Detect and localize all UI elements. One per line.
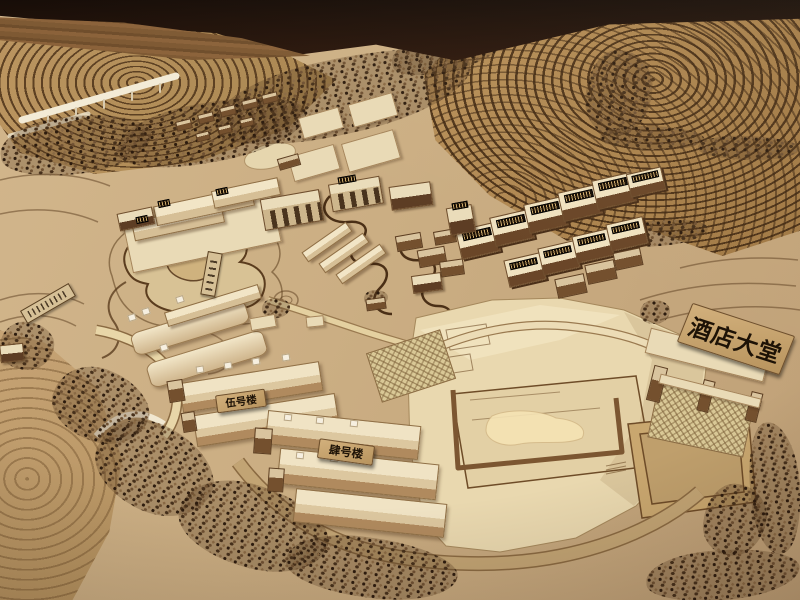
building-block — [195, 130, 211, 142]
roof-plaque — [563, 189, 593, 204]
building-chimney — [284, 414, 293, 422]
building-chimney — [252, 357, 261, 365]
building-gabled — [411, 272, 443, 294]
building-chimney — [196, 365, 205, 373]
building-slab — [249, 314, 277, 331]
building-block — [219, 104, 237, 118]
building-block — [554, 273, 588, 299]
roof-plaque — [611, 221, 640, 235]
building-slab — [348, 92, 399, 128]
building-block — [365, 297, 386, 312]
building-chimney — [159, 343, 169, 352]
model-photo: 伍号楼 肆号楼 酒店大堂 — [0, 0, 800, 600]
building-block — [439, 258, 465, 277]
building-slab — [305, 315, 324, 328]
building-block — [197, 111, 215, 125]
building-block — [181, 411, 198, 433]
building-chimney — [282, 353, 291, 361]
building-chimney — [316, 417, 325, 425]
building-chimney — [175, 295, 185, 304]
building-chimney — [350, 420, 359, 428]
building-slab — [341, 129, 401, 173]
building-chimney — [141, 307, 151, 316]
building-gabled — [389, 181, 434, 211]
building-block — [241, 97, 259, 111]
building-townhouse — [605, 216, 648, 252]
building-gabled — [0, 343, 25, 363]
roof-plaque — [495, 214, 525, 229]
building-block — [166, 379, 185, 403]
roof-plaque — [631, 170, 658, 183]
building-block — [584, 259, 618, 285]
building-block — [217, 123, 233, 135]
building-townhouse — [626, 166, 666, 197]
roof-plaque — [577, 233, 606, 247]
building-chimney — [296, 452, 305, 460]
building-block — [261, 91, 279, 105]
building-block — [612, 247, 643, 270]
roof-plaque — [543, 245, 572, 259]
roof-plaque — [597, 177, 627, 192]
building-block — [267, 467, 285, 492]
roof-plaque — [509, 257, 538, 271]
building-chimney — [224, 361, 233, 369]
building-block — [239, 116, 255, 128]
building-chimney — [127, 313, 137, 322]
building-block — [175, 118, 193, 132]
building-layer — [0, 0, 800, 600]
roof-plaque — [529, 201, 559, 216]
building-block — [253, 427, 273, 454]
building-slab — [298, 107, 344, 140]
